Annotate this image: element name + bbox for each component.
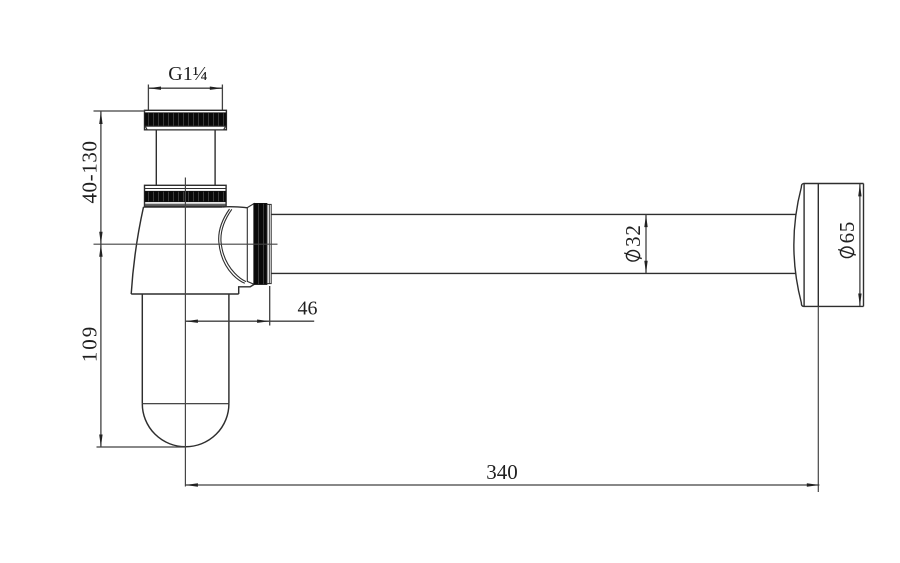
svg-text:65: 65	[835, 221, 859, 244]
svg-text:340: 340	[486, 460, 518, 484]
svg-text:109: 109	[78, 325, 102, 363]
svg-text:40-130: 40-130	[78, 140, 102, 203]
svg-text:32: 32	[621, 224, 645, 247]
svg-text:G1¼: G1¼	[168, 63, 207, 85]
svg-text:46: 46	[298, 298, 318, 320]
